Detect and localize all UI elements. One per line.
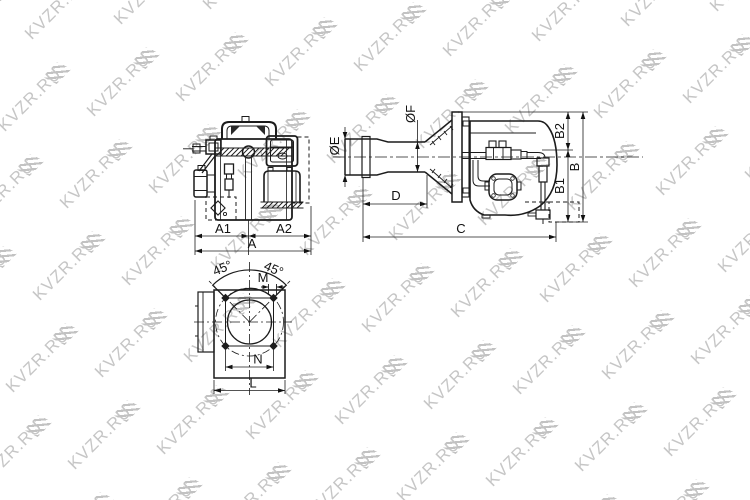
dim-label-b1: B1 (552, 178, 567, 194)
technical-drawing: A1 A2 A ØF (0, 0, 750, 500)
view-burner-profile: ØF ØE (327, 105, 643, 242)
dim-label-oe: ØE (327, 136, 342, 155)
motor-housing (261, 168, 304, 209)
dim-label-b2: B2 (552, 123, 567, 139)
view-mounting-flange: 45° 45° M N L (194, 257, 292, 395)
angle-label-left: 45° (210, 257, 234, 278)
view-burner-side: A1 A2 A (183, 117, 311, 256)
dim-label-d: D (391, 188, 400, 203)
optional-extension-box (525, 202, 579, 222)
dim-label-c: C (456, 221, 465, 236)
igniter-assembly (225, 164, 234, 198)
optional-part-box (206, 197, 236, 220)
dim-label-n: N (253, 352, 262, 367)
ignition-electrode (536, 158, 550, 224)
dimensions-right-view: D C B2 B1 B (363, 112, 588, 242)
burner-dimension-drawing: KVZR.RUKVZR.RUKVZR.RUKVZR.RUKVZR.RUKVZR.… (0, 0, 750, 500)
fan-housing (470, 121, 557, 218)
blast-tube-end (194, 166, 215, 198)
dim-label-m: M (258, 270, 269, 285)
dim-label-of: ØF (403, 105, 418, 123)
dimension-of: ØF (403, 105, 420, 172)
dim-label-a2: A2 (276, 221, 292, 236)
dim-label-a: A (248, 236, 257, 251)
dim-label-b: B (567, 163, 582, 172)
fuel-pump (485, 174, 521, 200)
dim-label-a1: A1 (215, 221, 231, 236)
dim-label-l: L (249, 376, 256, 391)
